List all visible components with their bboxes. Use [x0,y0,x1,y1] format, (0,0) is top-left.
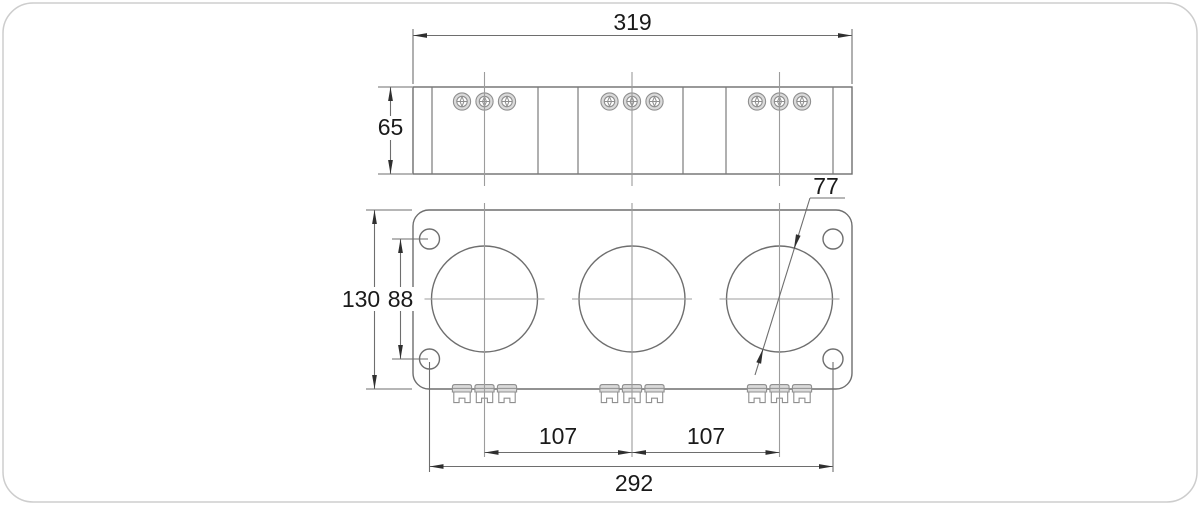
window-pitch-left-label: 107 [539,423,577,449]
arrowhead [819,464,833,469]
arrowhead [372,210,377,224]
drawing-page: 319 65 [0,0,1200,505]
dim-body-height: 65 [375,87,412,174]
dim-hole-horizontal-pitch: 292 [430,362,834,496]
dim-window-pitch-left: 107 [485,423,633,455]
arrowhead [618,450,632,455]
top-view-centerlines [485,72,780,186]
dim-window-diameter: 77 [755,173,845,375]
leader-line [755,198,810,375]
arrowhead [632,450,646,455]
mounting-hole [823,229,843,249]
arrowhead [398,345,403,359]
arrowhead [794,234,801,249]
hole-horizontal-pitch-label: 292 [615,470,653,496]
top-view [413,72,852,186]
technical-drawing-canvas: 319 65 [0,0,1200,505]
dim-window-pitch-right: 107 [632,423,780,455]
body-height-label: 65 [378,114,404,140]
arrowhead [756,349,763,364]
page-border [3,3,1197,502]
arrowhead [485,450,499,455]
arrowhead [430,464,444,469]
front-view [413,203,852,457]
overall-width-label: 319 [613,9,651,35]
arrowhead [413,33,427,38]
window-pitch-right-label: 107 [687,423,725,449]
arrowhead [398,239,403,253]
plate-height-label: 130 [342,286,380,312]
front-view-centerlines [425,203,840,457]
window-diameter-label: 77 [813,173,839,199]
arrowhead [372,375,377,389]
arrowhead [388,87,393,101]
hole-vertical-pitch-label: 88 [388,286,414,312]
arrowhead [838,33,852,38]
dim-hole-vertical-pitch: 88 [386,239,428,359]
arrowhead [388,160,393,174]
arrowhead [766,450,780,455]
